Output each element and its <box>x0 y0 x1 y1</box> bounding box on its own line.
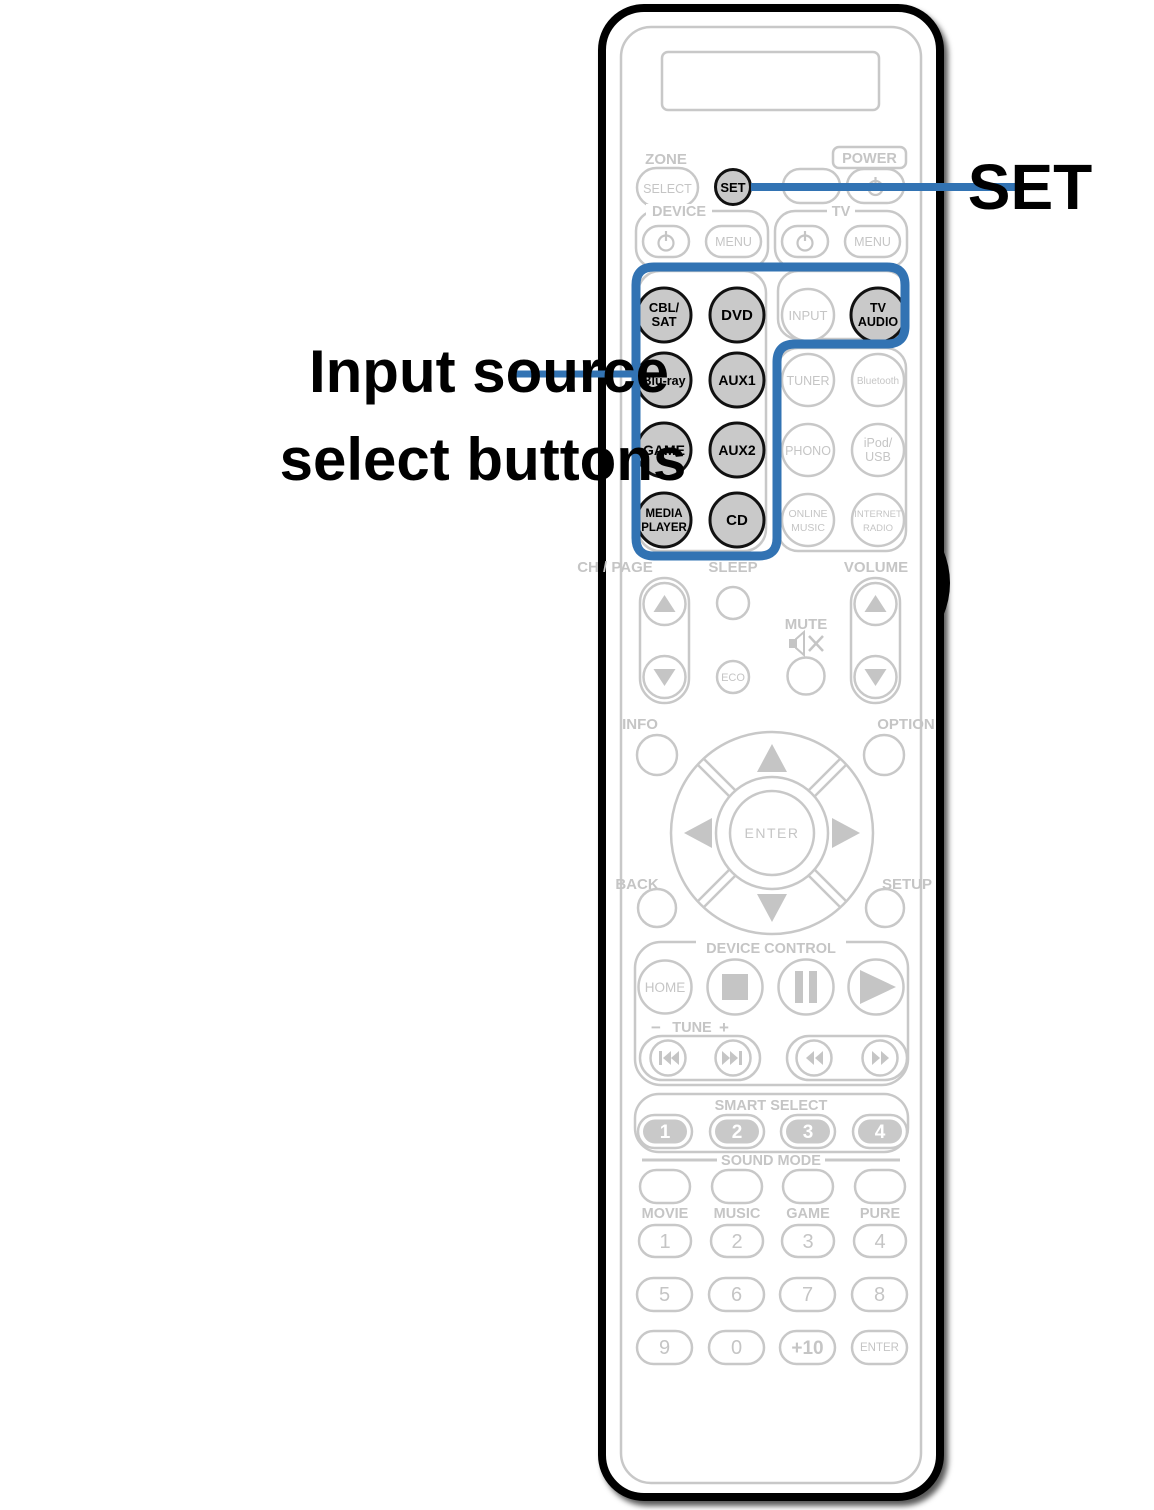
eco-label: ECO <box>721 672 745 684</box>
pure-label: PURE <box>860 1206 901 1222</box>
power-label: POWER <box>842 151 897 167</box>
key-enter-label: ENTER <box>860 1342 899 1354</box>
key-plus10-label: +10 <box>791 1338 823 1359</box>
cbl-sat-label-2: SAT <box>651 314 676 329</box>
remote-diagram: ZONE SELECT SET POWER DEVICE MENU TV <box>0 0 1154 1510</box>
online-music-label-2: MUSIC <box>791 522 825 534</box>
key-2-label: 2 <box>731 1231 742 1253</box>
ch-page-label: CH / PAGE <box>577 559 653 576</box>
volume-label: VOLUME <box>844 559 908 576</box>
phono-label: PHONO <box>785 444 831 458</box>
zone-label: ZONE <box>645 151 687 168</box>
input-source-callout-line2: select buttons <box>280 426 687 493</box>
pause-button[interactable] <box>779 960 834 1015</box>
dvd-label: DVD <box>721 307 753 324</box>
key-4-label: 4 <box>874 1231 885 1253</box>
internet-radio-button[interactable] <box>852 494 904 546</box>
key-6-label: 6 <box>731 1284 742 1306</box>
input-source-callout-line1: Input source <box>309 338 669 405</box>
sleep-label: SLEEP <box>708 559 757 576</box>
manual-page: ZONE SELECT SET POWER DEVICE MENU TV <box>0 0 1154 1510</box>
sleep-button[interactable] <box>717 587 749 619</box>
mute-label: MUTE <box>785 616 828 633</box>
ipod-usb-label-2: USB <box>865 450 891 464</box>
tune-plus-label: + <box>719 1018 729 1037</box>
media-player-label-1: MEDIA <box>645 508 682 520</box>
smart-select-2-label: 2 <box>732 1122 743 1143</box>
tv-audio-label-1: TV <box>870 301 887 315</box>
tune-minus-label: − <box>651 1018 661 1037</box>
game-mode-label: GAME <box>786 1206 830 1222</box>
option-label: OPTION <box>877 716 935 733</box>
home-label: HOME <box>645 980 686 995</box>
key-5-label: 5 <box>659 1284 670 1306</box>
sound-mode-label: SOUND MODE <box>721 1153 821 1169</box>
media-player-button[interactable] <box>637 493 691 547</box>
cd-label: CD <box>726 512 748 529</box>
online-music-label-1: ONLINE <box>788 508 827 520</box>
bluetooth-label: Bluetooth <box>857 376 899 387</box>
display-window <box>662 52 879 110</box>
sound-mode-pure-button[interactable] <box>855 1170 905 1203</box>
smart-select-4-label: 4 <box>875 1122 886 1143</box>
set-button-label: SET <box>720 180 745 195</box>
device-label: DEVICE <box>652 204 706 220</box>
media-player-label-2: PLAYER <box>641 522 687 534</box>
option-button[interactable] <box>864 735 904 775</box>
sound-mode-movie-button[interactable] <box>640 1170 690 1203</box>
key-1-label: 1 <box>659 1231 670 1253</box>
back-button[interactable] <box>638 889 676 927</box>
mute-button[interactable] <box>788 658 825 695</box>
tv-power-button[interactable] <box>782 226 828 257</box>
online-music-button[interactable] <box>782 494 834 546</box>
sound-mode-game-button[interactable] <box>783 1170 833 1203</box>
music-label: MUSIC <box>714 1206 761 1222</box>
aux2-label: AUX2 <box>718 442 756 458</box>
tv-menu-label: MENU <box>854 235 891 249</box>
device-power-button[interactable] <box>643 226 689 257</box>
input-label: INPUT <box>789 308 828 323</box>
aux1-label: AUX1 <box>718 372 756 388</box>
internet-radio-label-2: RADIO <box>863 523 893 534</box>
tune-label: TUNE <box>672 1020 712 1036</box>
stop-icon <box>722 974 748 1000</box>
cbl-sat-label-1: CBL/ <box>649 300 680 315</box>
key-0-label: 0 <box>731 1337 742 1359</box>
key-8-label: 8 <box>874 1284 885 1306</box>
key-3-label: 3 <box>802 1231 813 1253</box>
key-7-label: 7 <box>802 1284 813 1306</box>
tuner-label: TUNER <box>786 374 829 388</box>
device-menu-label: MENU <box>715 235 752 249</box>
smart-select-1-label: 1 <box>660 1122 671 1143</box>
key-9-label: 9 <box>659 1337 670 1359</box>
movie-label: MOVIE <box>642 1206 689 1222</box>
info-button[interactable] <box>637 735 677 775</box>
device-control-label: DEVICE CONTROL <box>706 941 836 957</box>
sound-mode-music-button[interactable] <box>712 1170 762 1203</box>
zone-select-label: SELECT <box>643 182 692 196</box>
internet-radio-label-1: INTERNET <box>854 509 902 520</box>
smart-select-3-label: 3 <box>803 1122 814 1143</box>
info-label: INFO <box>622 716 658 733</box>
set-callout-label: SET <box>968 151 1092 223</box>
tv-label: TV <box>832 204 851 220</box>
tv-audio-label-2: AUDIO <box>858 315 899 329</box>
smart-select-label: SMART SELECT <box>715 1098 828 1114</box>
ipod-usb-label-1: iPod/ <box>864 436 893 450</box>
enter-label: ENTER <box>745 825 800 841</box>
setup-button[interactable] <box>866 889 904 927</box>
